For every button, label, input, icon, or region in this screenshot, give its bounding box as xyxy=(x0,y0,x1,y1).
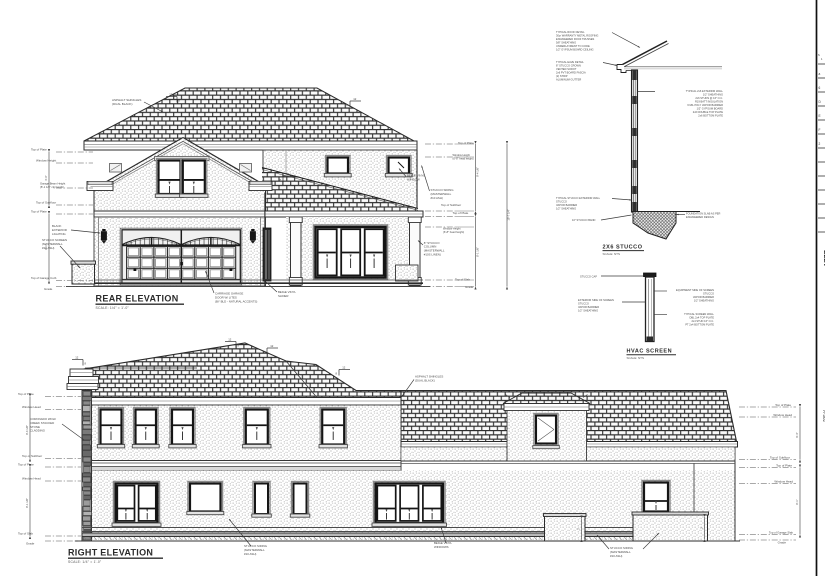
svg-text:2x4 STUD 16" O.C.: 2x4 STUD 16" O.C. xyxy=(691,319,714,323)
svg-text:#10S LINEN): #10S LINEN) xyxy=(424,253,441,257)
svg-text:#10 ASH): #10 ASH) xyxy=(610,554,622,558)
svg-text:6 MIL POLY VAPOR BARRIER: 6 MIL POLY VAPOR BARRIER xyxy=(687,103,723,107)
svg-text:8'-1 1/8": 8'-1 1/8" xyxy=(476,247,480,257)
svg-text:Top of Garage Slab: Top of Garage Slab xyxy=(769,530,794,534)
svg-text:8" STUCCO CROWN: 8" STUCCO CROWN xyxy=(556,64,581,68)
svg-text:STUCCO CAP: STUCCO CAP xyxy=(580,274,597,278)
svg-text:F: F xyxy=(819,128,821,132)
svg-text:HVAC SCREEN: HVAC SCREEN xyxy=(627,349,673,355)
svg-text:TYPICAL EAVE DETAIL: TYPICAL EAVE DETAIL xyxy=(556,60,584,64)
svg-text:1/2" GYPSUM BOARD CEILING: 1/2" GYPSUM BOARD CEILING xyxy=(556,48,594,52)
svg-text:(BY BLD - NATURAL ACCENTS): (BY BLD - NATURAL ACCENTS) xyxy=(215,299,257,303)
svg-text:12: 12 xyxy=(286,172,290,176)
svg-text:WINDOWS: WINDOWS xyxy=(434,545,449,549)
svg-text:1/2" GYPSUM BOARD: 1/2" GYPSUM BOARD xyxy=(697,107,724,111)
svg-text:RIGHT ELEVATION: RIGHT ELEVATION xyxy=(68,548,153,558)
svg-text:VAPOR BARRIER: VAPOR BARRIER xyxy=(693,295,714,299)
svg-text:2x6 BOTTOM PLATE: 2x6 BOTTOM PLATE xyxy=(698,114,723,118)
svg-text:Top of Slab: Top of Slab xyxy=(455,278,470,282)
svg-text:8'-1 1/8": 8'-1 1/8" xyxy=(25,498,29,508)
svg-text:(DUAL BLACK): (DUAL BLACK) xyxy=(112,102,133,106)
svg-text:Grade: Grade xyxy=(26,542,35,546)
svg-text:Top of Garage Curb: Top of Garage Curb xyxy=(31,276,57,280)
svg-text:DBL 2x4 TOP PLATE: DBL 2x4 TOP PLATE xyxy=(689,316,714,320)
svg-text:1/2" SHEATHING: 1/2" SHEATHING xyxy=(556,207,576,211)
svg-text:REAR ELEVATION: REAR ELEVATION xyxy=(96,294,179,304)
svg-text:8'-1": 8'-1" xyxy=(44,244,48,249)
svg-text:Window Head: Window Head xyxy=(774,479,793,483)
svg-text:12: 12 xyxy=(169,93,173,97)
svg-text:Grade: Grade xyxy=(465,285,474,289)
svg-text:SCALE: NTS: SCALE: NTS xyxy=(603,252,621,256)
svg-text:12: 12 xyxy=(228,338,232,342)
svg-text:Window Height: Window Height xyxy=(36,159,56,163)
svg-text:9'-4": 9'-4" xyxy=(795,432,799,437)
svg-text:WINDOW: WINDOW xyxy=(407,177,420,181)
svg-text:UNDERLAYMENT TO CODE: UNDERLAYMENT TO CODE xyxy=(556,44,590,48)
svg-text:TYPICAL ROOF DETAIL: TYPICAL ROOF DETAIL xyxy=(556,30,585,34)
svg-text:Top of Plate: Top of Plate xyxy=(775,403,791,407)
svg-text:ENGINEERED ROOF TRUSSES: ENGINEERED ROOF TRUSSES xyxy=(556,37,595,41)
svg-text:#10 ASH): #10 ASH) xyxy=(42,246,54,250)
svg-text:Top of Slab: Top of Slab xyxy=(18,532,33,536)
svg-text:30yr WARRANTY METAL ROOFING: 30yr WARRANTY METAL ROOFING xyxy=(556,34,598,38)
svg-text:Top of Plate: Top of Plate xyxy=(18,392,34,396)
svg-text:EQUIPMENT SIDE OF SCREEN: EQUIPMENT SIDE OF SCREEN xyxy=(676,288,714,292)
svg-text:5/8" SHEATHING: 5/8" SHEATHING xyxy=(556,41,576,45)
svg-text:1/2" SHEATHING: 1/2" SHEATHING xyxy=(578,309,598,313)
svg-text:TYPICAL STUCCO EXTERIOR WALL: TYPICAL STUCCO EXTERIOR WALL xyxy=(556,196,601,200)
svg-text:Top of Plate: Top of Plate xyxy=(31,148,47,152)
svg-text:VAPOR BARRIER: VAPOR BARRIER xyxy=(556,203,577,207)
svg-text:Top of Plate: Top of Plate xyxy=(18,463,34,467)
svg-text:S: S xyxy=(818,53,820,57)
svg-text:10" STUCCO BAND: 10" STUCCO BAND xyxy=(572,218,596,222)
svg-text:SLIDER: SLIDER xyxy=(278,294,288,298)
svg-text:STUCCO: STUCCO xyxy=(556,200,567,204)
svg-text:Window Height: Window Height xyxy=(453,153,471,157)
svg-text:Top of Subfloor: Top of Subfloor xyxy=(36,201,56,205)
svg-text:#10 ASH): #10 ASH) xyxy=(431,196,443,200)
svg-text:Window Head: Window Head xyxy=(773,413,792,417)
svg-text:2x6 DOUBLE TOP PLATE: 2x6 DOUBLE TOP PLATE xyxy=(693,110,723,114)
svg-text:STUCCO: STUCCO xyxy=(578,302,589,306)
svg-text:1/2" SHEATHING: 1/2" SHEATHING xyxy=(703,93,723,97)
svg-text:9'-4 1/8": 9'-4 1/8" xyxy=(476,167,480,177)
svg-text:TYPICAL SCREEN WALL: TYPICAL SCREEN WALL xyxy=(684,312,714,316)
svg-text:Grade: Grade xyxy=(778,540,787,544)
svg-text:STUCCO: STUCCO xyxy=(703,292,714,296)
svg-text:2x6 STUDS @ 16" O.C.: 2x6 STUDS @ 16" O.C. xyxy=(695,96,723,100)
svg-text:SCALE: 1/4" = 1'-0": SCALE: 1/4" = 1'-0" xyxy=(96,306,130,310)
svg-text:#10 ASH): #10 ASH) xyxy=(244,552,256,556)
svg-text:ALUMINUM GUTTER: ALUMINUM GUTTER xyxy=(556,78,581,82)
svg-text:ENGINEERED DESIGN: ENGINEERED DESIGN xyxy=(686,215,714,219)
svg-text:2X6 STUCCO: 2X6 STUCCO xyxy=(603,245,643,251)
svg-text:6: 6 xyxy=(819,86,821,90)
svg-text:CLADDING: CLADDING xyxy=(30,429,46,433)
svg-text:Top of Plate: Top of Plate xyxy=(776,463,792,467)
svg-text:(8'-1 1/8" clg height): (8'-1 1/8" clg height) xyxy=(40,185,64,189)
svg-text:VAPOR BARRIER: VAPOR BARRIER xyxy=(578,305,599,309)
svg-text:12: 12 xyxy=(75,356,79,360)
svg-text:E: E xyxy=(819,114,821,118)
svg-text:(2) STRIP: (2) STRIP xyxy=(556,74,568,78)
svg-text:SCALE: NTS: SCALE: NTS xyxy=(627,356,645,360)
svg-text:EXTERIOR SIDE OF SCREEN: EXTERIOR SIDE OF SCREEN xyxy=(578,298,614,302)
svg-text:Top of Plate: Top of Plate xyxy=(31,210,47,214)
svg-text:12: 12 xyxy=(353,97,357,101)
svg-text:FOUNDATION SLAB AS PER: FOUNDATION SLAB AS PER xyxy=(686,212,721,216)
svg-text:9'-4 1/8": 9'-4 1/8" xyxy=(25,425,29,435)
svg-text:1/2" SHEATHING: 1/2" SHEATHING xyxy=(694,299,714,303)
svg-text:12: 12 xyxy=(342,366,346,370)
svg-text:Garage Beam Height: Garage Beam Height xyxy=(40,182,65,186)
svg-text:Grade: Grade xyxy=(44,287,53,291)
svg-text:Window Head: Window Head xyxy=(22,477,41,481)
svg-text:2: 2 xyxy=(819,142,821,146)
svg-text:Top of Subfloor: Top of Subfloor xyxy=(770,455,790,459)
svg-text:(6'-8" head height): (6'-8" head height) xyxy=(443,230,464,234)
svg-text:2x6 PVT BOARD FASCIA: 2x6 PVT BOARD FASCIA xyxy=(556,71,586,75)
svg-text:(DUAL BLACK): (DUAL BLACK) xyxy=(415,379,435,383)
svg-text:Top of Subfloor: Top of Subfloor xyxy=(441,203,461,207)
svg-text:a: a xyxy=(819,72,821,76)
svg-text:SCALE: 1/4" = 1'-0": SCALE: 1/4" = 1'-0" xyxy=(68,560,102,564)
svg-text:19'-7 1/4": 19'-7 1/4" xyxy=(507,209,511,220)
svg-text:12: 12 xyxy=(270,344,274,348)
svg-text:Top of Plate: Top of Plate xyxy=(453,211,469,215)
svg-text:Window Head: Window Head xyxy=(22,405,41,409)
svg-text:LIGHTING: LIGHTING xyxy=(52,232,66,236)
svg-text:VENTED SOFFIT: VENTED SOFFIT xyxy=(556,67,577,71)
svg-text:TYPICAL 2x6 EXTERIOR WALL: TYPICAL 2x6 EXTERIOR WALL xyxy=(686,89,724,93)
svg-text:8'-1": 8'-1" xyxy=(795,499,799,504)
svg-text:Top of Subfloor: Top of Subfloor xyxy=(22,454,42,458)
svg-text:4'-0": 4'-0" xyxy=(44,175,48,180)
svg-text:R19 BATT INSULATION: R19 BATT INSULATION xyxy=(695,100,723,104)
svg-text:PT 2x4 BOTTOM PLATE: PT 2x4 BOTTOM PLATE xyxy=(685,323,714,327)
